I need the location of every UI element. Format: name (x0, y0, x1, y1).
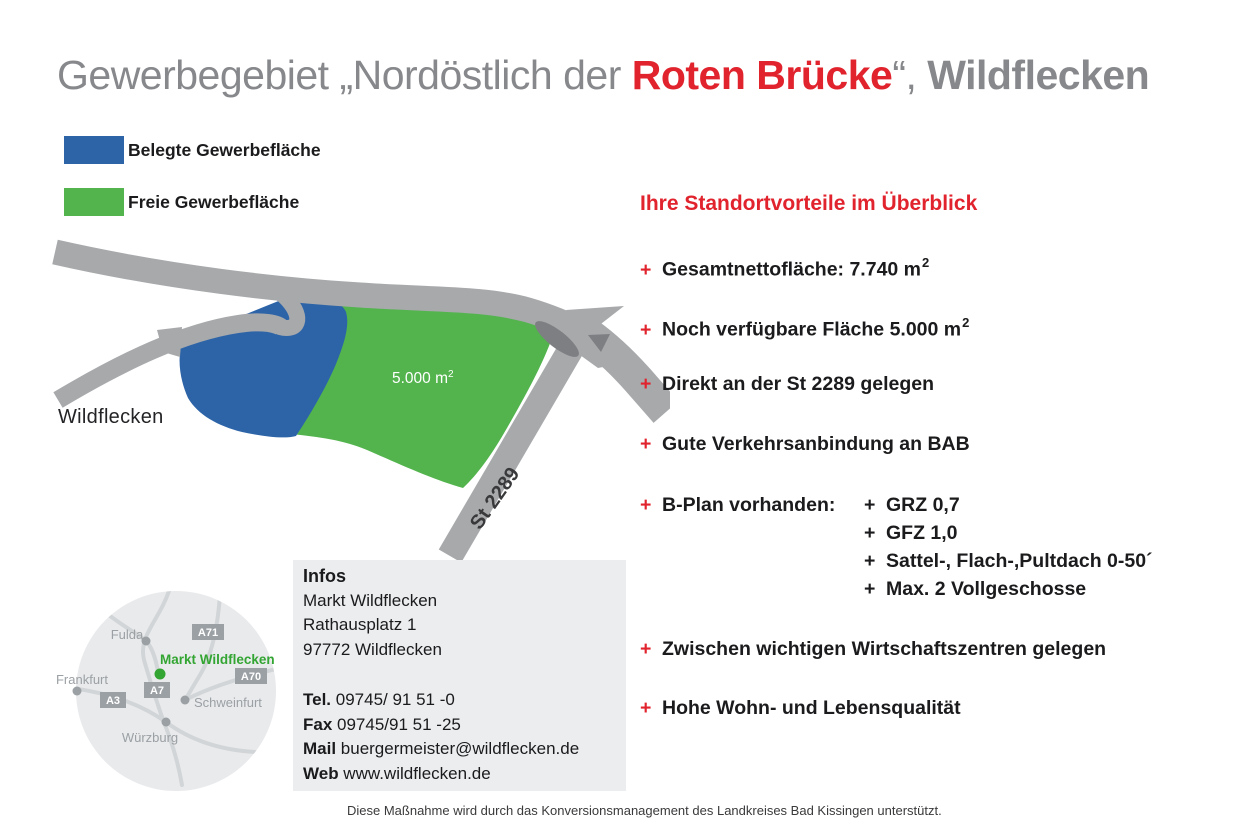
city-dot-wuerzburg (162, 718, 171, 727)
bplan-detail-label: GFZ 1,0 (886, 522, 958, 544)
bplan-detail-label: GRZ 0,7 (886, 494, 960, 516)
highway-badge-a7: A7 (144, 682, 170, 698)
info-contact-block: Tel. 09745/ 91 51 -0 Fax 09745/91 51 -25… (303, 688, 579, 786)
legend-swatch-free (64, 188, 124, 216)
city-label-fulda: Fulda (111, 627, 144, 642)
title-quote: “, (892, 52, 927, 98)
plus-icon: + (864, 522, 886, 544)
advantage-label: Direkt an der St 2289 gelegen (662, 373, 934, 395)
title-suffix: Wildflecken (927, 52, 1149, 98)
contact-label-mail: Mail (303, 739, 336, 758)
advantage-sup: 2 (922, 255, 929, 270)
contact-value-tel: 09745/ 91 51 -0 (331, 690, 455, 709)
city-label-wuerzburg: Würzburg (122, 730, 178, 745)
plus-icon: + (640, 433, 662, 455)
advantage-label: Noch verfügbare Fläche 5.000 m (662, 319, 961, 341)
contact-line-fax: Fax 09745/91 51 -25 (303, 713, 579, 738)
plus-icon: + (640, 638, 662, 660)
contact-label-web: Web (303, 764, 339, 783)
plus-icon: + (640, 494, 662, 516)
advantage-item: +Gute Verkehrsanbindung an BAB (640, 433, 970, 455)
advantage-item: +B-Plan vorhanden: (640, 494, 835, 516)
advantage-label: Zwischen wichtigen Wirtschaftszentren ge… (662, 638, 1106, 660)
svg-text:A3: A3 (106, 695, 120, 707)
advantages-heading: Ihre Standortvorteile im Überblick (640, 192, 977, 216)
location-minimap-svg: A71 A70 A7 A3 Fulda Frankfurt Schweinfur… (40, 580, 300, 800)
info-address-line: 97772 Wildflecken (303, 638, 442, 663)
legend-label-occupied: Belegte Gewerbefläche (128, 140, 321, 161)
legend-swatch-occupied (64, 136, 124, 164)
town-label: Wildflecken (58, 406, 164, 429)
contact-value-fax: 09745/91 51 -25 (332, 715, 461, 734)
advantage-label: Gesamtnettofläche: 7.740 m (662, 259, 921, 281)
advantage-item: +Noch verfügbare Fläche 5.000 m2 (640, 313, 969, 341)
title-prefix: Gewerbegebiet „Nordöstlich der (57, 52, 632, 98)
bplan-detail-item: +Max. 2 Vollgeschosse (864, 578, 1086, 600)
advantage-label: Hohe Wohn- und Lebensqualität (662, 697, 961, 719)
bplan-detail-item: +GFZ 1,0 (864, 522, 958, 544)
advantage-item: +Gesamtnettofläche: 7.740 m2 (640, 253, 929, 281)
contact-value-web: www.wildflecken.de (339, 764, 491, 783)
contact-label-fax: Fax (303, 715, 332, 734)
area-size-label: 5.000 m2 (392, 369, 454, 387)
bplan-detail-label: Sattel-, Flach-,Pultdach 0-50´ (886, 550, 1153, 572)
advantage-item: +Zwischen wichtigen Wirtschaftszentren g… (640, 638, 1106, 660)
city-label-frankfurt: Frankfurt (56, 672, 108, 687)
bplan-detail-item: +GRZ 0,7 (864, 494, 960, 516)
marker-dot-wildflecken (155, 669, 166, 680)
bplan-detail-label: Max. 2 Vollgeschosse (886, 578, 1086, 600)
title-highlight: Roten Brücke (632, 52, 893, 98)
info-address-line: Rathausplatz 1 (303, 613, 442, 638)
info-address-block: Infos Markt Wildflecken Rathausplatz 1 9… (303, 564, 442, 663)
plus-icon: + (640, 259, 662, 281)
info-address-line: Markt Wildflecken (303, 589, 442, 614)
city-dot-schweinfurt (181, 696, 190, 705)
svg-text:A71: A71 (198, 627, 218, 639)
highway-badge-a71: A71 (192, 624, 224, 640)
plus-icon: + (640, 319, 662, 341)
site-plan-map: 5.000 m2 St 2289 (30, 230, 670, 570)
legend-label-free: Freie Gewerbefläche (128, 192, 299, 213)
contact-line-tel: Tel. 09745/ 91 51 -0 (303, 688, 579, 713)
info-heading: Infos (303, 564, 442, 589)
page-title: Gewerbegebiet „Nordöstlich der Roten Brü… (57, 52, 1149, 99)
contact-value-mail: buergermeister@wildflecken.de (336, 739, 579, 758)
advantage-label: Gute Verkehrsanbindung an BAB (662, 433, 970, 455)
plus-icon: + (864, 578, 886, 600)
plus-icon: + (864, 550, 886, 572)
marker-label-wildflecken: Markt Wildflecken (160, 652, 275, 667)
flyer-page: { "title": { "prefix": "Gewerbegebiet „N… (0, 0, 1233, 835)
contact-line-mail: Mail buergermeister@wildflecken.de (303, 737, 579, 762)
highway-badge-a70: A70 (235, 668, 267, 684)
plus-icon: + (640, 373, 662, 395)
location-minimap: A71 A70 A7 A3 Fulda Frankfurt Schweinfur… (40, 580, 300, 800)
advantage-item: +Direkt an der St 2289 gelegen (640, 373, 934, 395)
contact-line-web: Web www.wildflecken.de (303, 762, 579, 787)
svg-text:A70: A70 (241, 671, 261, 683)
footer-note: Diese Maßnahme wird durch das Konversion… (347, 803, 942, 818)
plus-icon: + (640, 697, 662, 719)
advantage-label: B-Plan vorhanden: (662, 494, 835, 516)
plus-icon: + (864, 494, 886, 516)
contact-label-tel: Tel. (303, 690, 331, 709)
svg-text:A7: A7 (150, 685, 164, 697)
bplan-detail-item: +Sattel-, Flach-,Pultdach 0-50´ (864, 550, 1153, 572)
advantage-sup: 2 (962, 315, 969, 330)
city-dot-frankfurt (73, 687, 82, 696)
city-label-schweinfurt: Schweinfurt (194, 695, 262, 710)
advantage-item: +Hohe Wohn- und Lebensqualität (640, 697, 961, 719)
highway-badge-a3: A3 (100, 692, 126, 708)
site-plan-svg: 5.000 m2 St 2289 (30, 230, 670, 570)
